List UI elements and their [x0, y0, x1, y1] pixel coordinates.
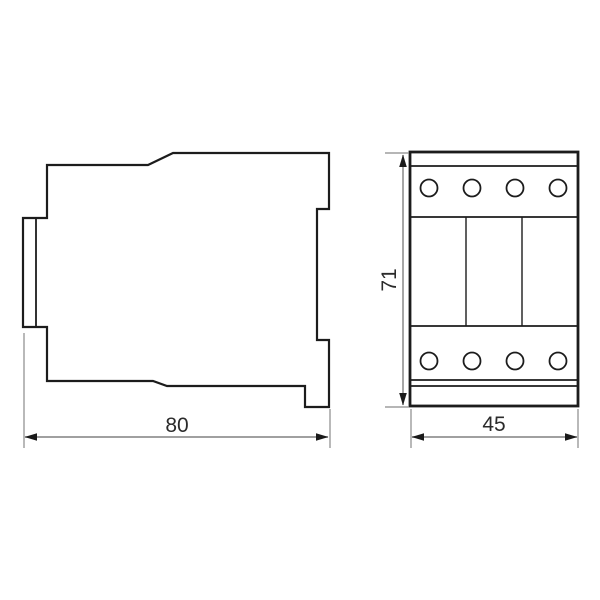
terminal-screw-circle: [550, 353, 567, 370]
terminal-screw-circle: [421, 353, 438, 370]
terminal-screw-circle: [421, 180, 438, 197]
front-lower-terminal-row: [421, 353, 567, 370]
dimension-71-height: 71: [378, 153, 409, 407]
front-view: [410, 152, 578, 406]
side-view: [23, 153, 329, 407]
dimension-80-label: 80: [165, 414, 188, 437]
terminal-screw-circle: [550, 180, 567, 197]
terminal-screw-circle: [507, 353, 524, 370]
terminal-screw-circle: [464, 353, 481, 370]
dimension-45-label: 45: [482, 413, 505, 436]
side-view-body-outline: [23, 153, 329, 407]
dimension-80-depth: 80: [24, 333, 330, 448]
dimension-drawing-svg: 80 71 45: [0, 0, 600, 600]
technical-drawing-canvas: 80 71 45: [0, 0, 600, 600]
front-upper-terminal-row: [421, 180, 567, 197]
terminal-screw-circle: [507, 180, 524, 197]
dimension-45-width: 45: [411, 409, 578, 448]
terminal-screw-circle: [464, 180, 481, 197]
dimension-71-label: 71: [378, 268, 401, 291]
